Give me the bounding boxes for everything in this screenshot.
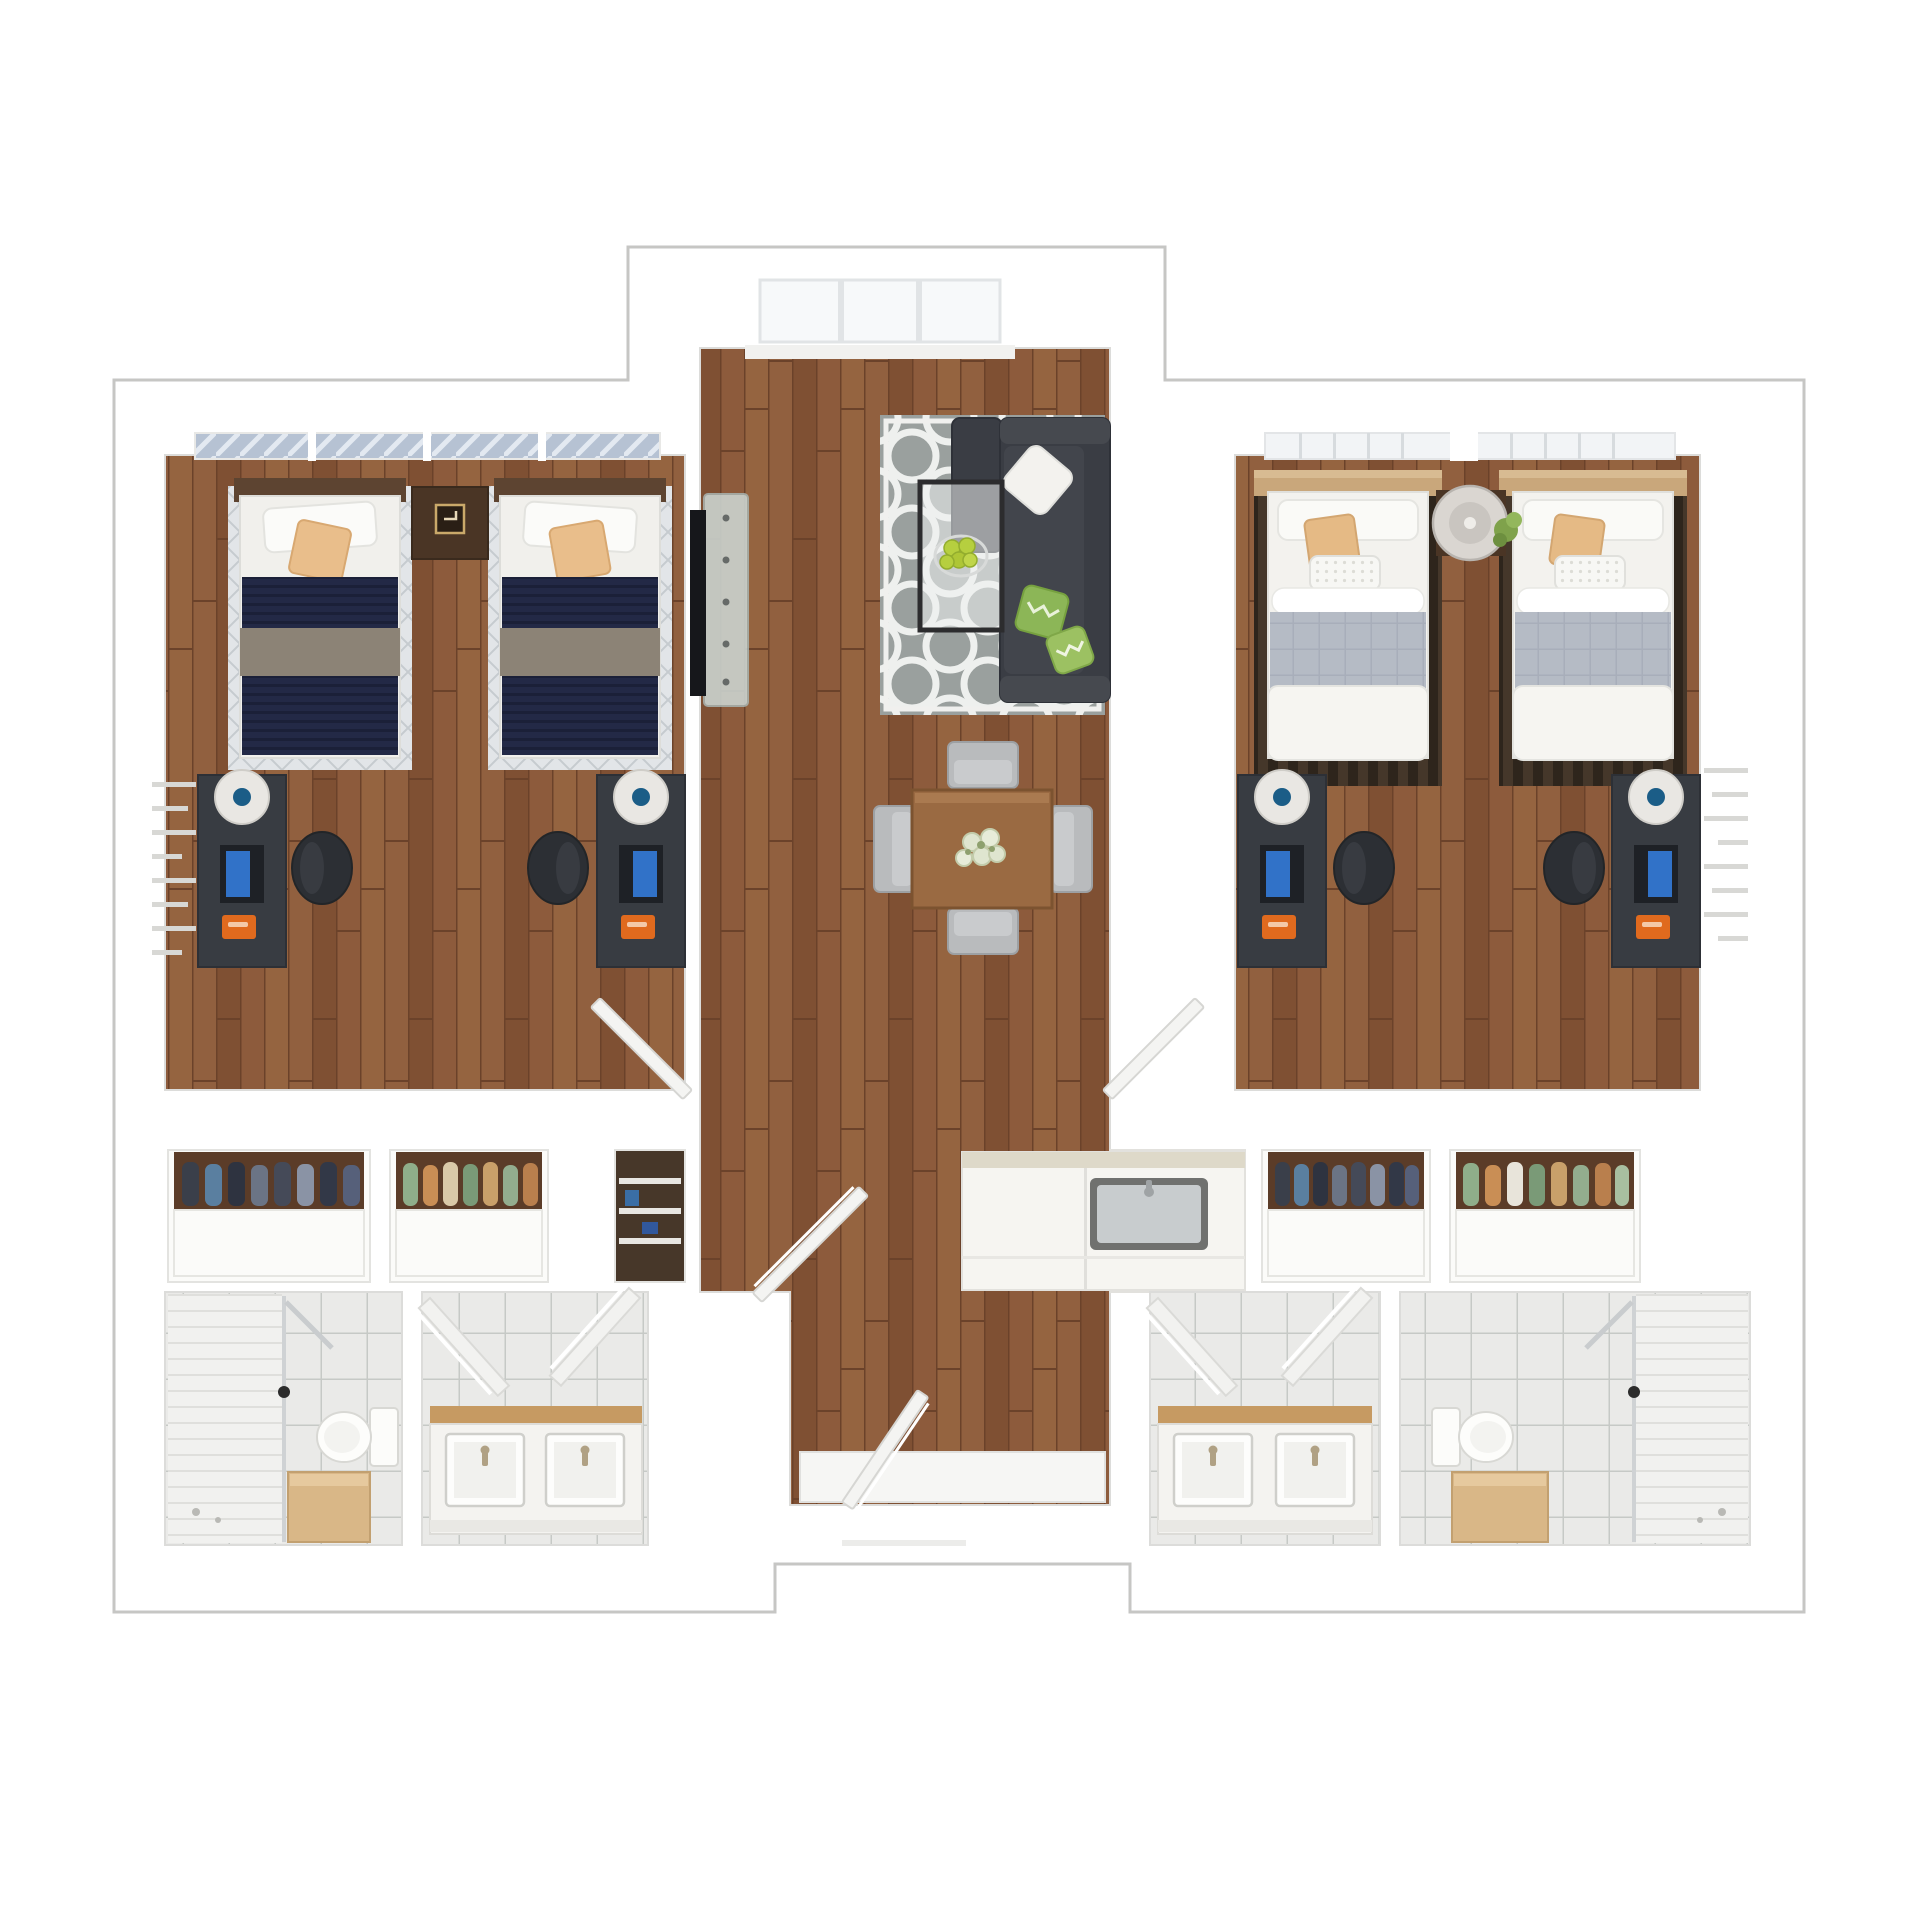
entry-threshold <box>842 1540 966 1546</box>
twin-bed-light-2 <box>1499 470 1687 786</box>
closet-right-b <box>1456 1152 1634 1276</box>
kitchenette-counter <box>962 1152 1245 1290</box>
bowl-of-green-apples <box>940 538 977 569</box>
twin-bed-navy-1 <box>228 478 412 770</box>
closet-left-a <box>174 1152 364 1276</box>
linen-closet-floor <box>615 1150 685 1282</box>
walk-in-shower <box>168 1294 282 1543</box>
bedroom-right-window <box>1265 431 1675 461</box>
closet-right-a <box>1268 1152 1424 1276</box>
floorplan-svg <box>0 0 1919 1919</box>
floorplan-image <box>0 0 1919 1919</box>
wall-mounted-tv <box>690 494 748 706</box>
entry-landing <box>800 1452 1105 1502</box>
closet-left-b <box>396 1152 542 1276</box>
toilet-tank <box>370 1408 398 1466</box>
walk-in-shower <box>1636 1294 1748 1543</box>
twin-bed-light-1 <box>1254 470 1442 786</box>
living-room-window <box>745 280 1015 359</box>
vanity-wood-countertop <box>1158 1406 1372 1424</box>
toilet-tank <box>1432 1408 1460 1466</box>
nightstand-with-clock <box>412 487 488 559</box>
twin-bed-navy-2 <box>488 478 672 770</box>
glass-coffee-table <box>920 482 1002 630</box>
vanity-wood-countertop <box>430 1406 642 1424</box>
bedroom-left-window <box>195 431 660 461</box>
